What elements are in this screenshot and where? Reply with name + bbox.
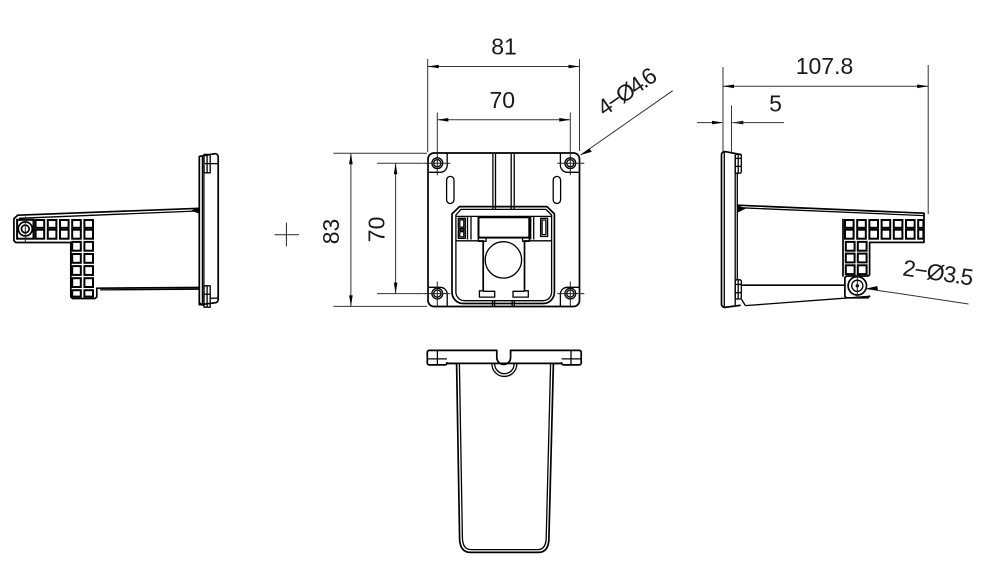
svg-text:70: 70 bbox=[490, 87, 516, 113]
svg-text:83: 83 bbox=[318, 219, 344, 245]
svg-text:107.8: 107.8 bbox=[796, 53, 854, 79]
svg-text:5: 5 bbox=[769, 91, 782, 117]
svg-text:81: 81 bbox=[491, 34, 517, 60]
svg-text:70: 70 bbox=[363, 217, 389, 243]
